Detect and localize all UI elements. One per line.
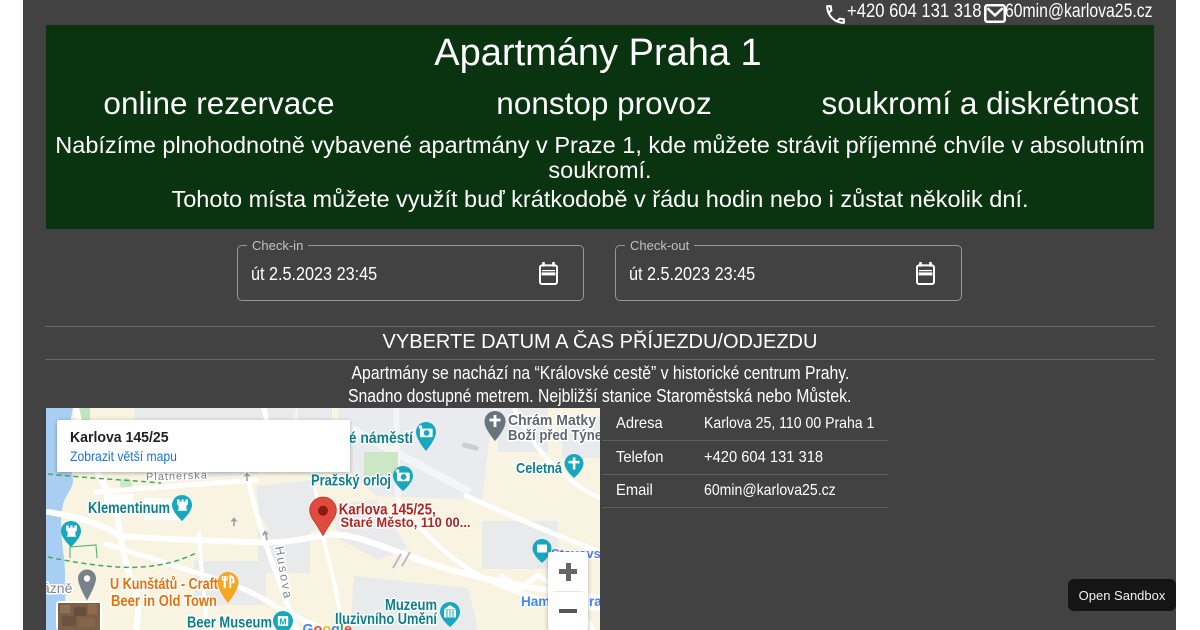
svg-text:Beer in Old Town: Beer in Old Town: [111, 593, 217, 610]
svg-text:ra: ra: [589, 594, 600, 609]
svg-text:Ham: Ham: [521, 594, 550, 609]
svg-text:Boží před Týne: Boží před Týne: [508, 427, 600, 444]
svg-text:Klementinum: Klementinum: [88, 500, 170, 517]
svg-text:Pražský orloj: Pražský orloj: [311, 473, 391, 490]
svg-text:Beer Museum: Beer Museum: [187, 615, 272, 630]
svg-text:Staré Město, 110 00...: Staré Město, 110 00...: [341, 514, 471, 530]
svg-text:ké náměstí: ké náměstí: [341, 430, 413, 447]
svg-text:ázně: ázně: [46, 580, 73, 596]
svg-text:U Kunštátů - Craft: U Kunštátů - Craft: [110, 576, 218, 593]
svg-text:Celetná: Celetná: [516, 460, 563, 477]
svg-text:M: M: [279, 616, 286, 626]
svg-text:Google: Google: [303, 621, 352, 630]
